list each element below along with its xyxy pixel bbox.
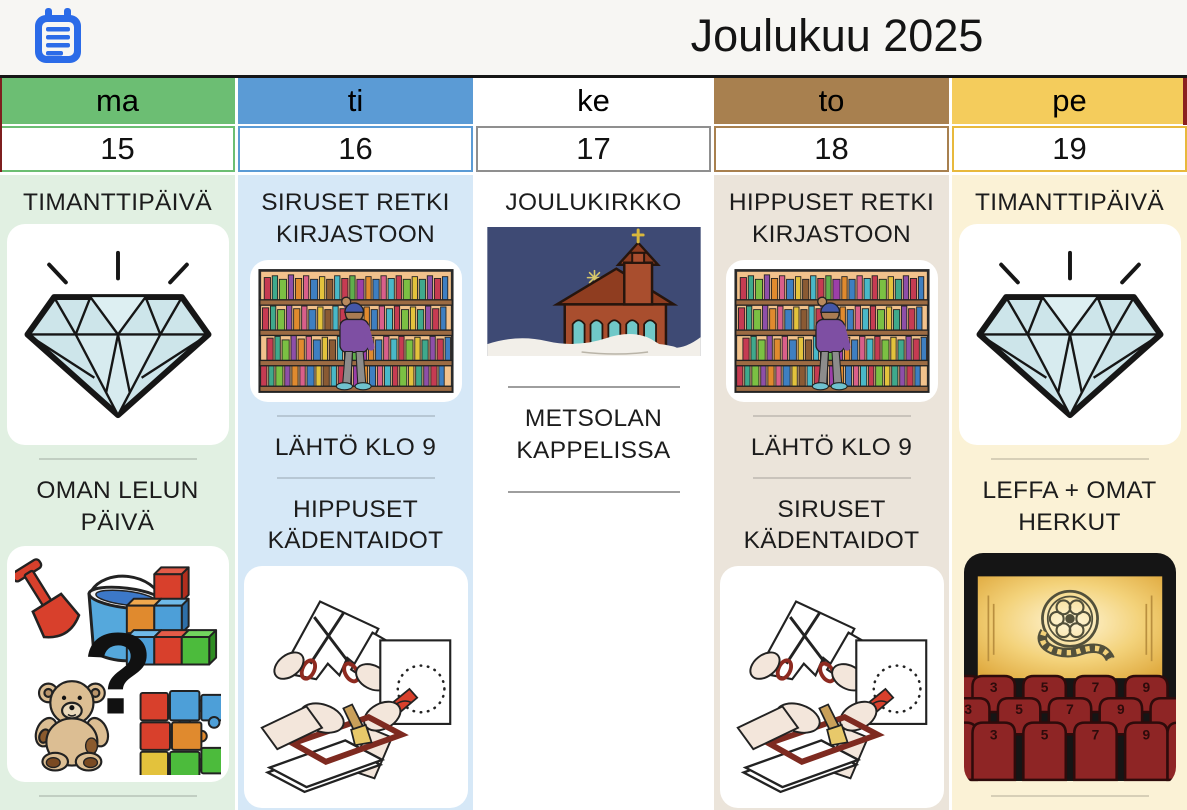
activity-divider xyxy=(753,415,911,417)
next-day-edge xyxy=(1183,78,1187,125)
day-name-header: ma xyxy=(0,78,235,124)
activity-label: TIMANTTIPÄIVÄ xyxy=(23,187,212,219)
activity-label: HIPPUSET KÄDENTAIDOT xyxy=(252,494,460,558)
activity-divider xyxy=(508,386,680,388)
activity-label: JOULUKIRKKO xyxy=(505,187,681,219)
seat-number: 7 xyxy=(1091,727,1099,742)
seat-number: 9 xyxy=(1142,679,1150,694)
seat-number: 5 xyxy=(1040,679,1048,694)
activity-divider xyxy=(277,415,435,417)
activity-divider xyxy=(277,477,435,479)
day-activities: TIMANTTIPÄIVÄ OMAN LELUN PÄIVÄ xyxy=(0,175,235,810)
activity-label: SIRUSET KÄDENTAIDOT xyxy=(728,494,936,558)
library-illustration xyxy=(250,260,462,402)
activity-label: TIMANTTIPÄIVÄ xyxy=(975,187,1164,219)
diamond-illustration xyxy=(959,224,1181,445)
activity-label: METSOLAN KAPPELISSA xyxy=(490,403,698,467)
crafts-illustration xyxy=(244,566,468,808)
seat-number: 9 xyxy=(1117,702,1125,717)
day-column-ma: ma 15 TIMANTTIPÄIVÄ OMAN LELUN PÄIVÄ xyxy=(0,78,235,810)
day-column-pe: pe 19 TIMANTTIPÄIVÄ LEFFA + OMAT HERKUT xyxy=(952,78,1187,810)
clipboard-icon[interactable] xyxy=(33,8,83,66)
day-column-ke: ke 17 JOULUKIRKKO xyxy=(476,78,711,810)
activity-divider xyxy=(508,491,680,493)
day-column-ti: ti 16 SIRUSET RETKI KIRJASTOON LÄHTÖ KLO… xyxy=(238,78,473,810)
activity-label: HIPPUSET RETKI KIRJASTOON xyxy=(728,187,936,251)
seat-number: 9 xyxy=(1142,727,1150,742)
seat-number: 3 xyxy=(964,702,972,717)
day-date-cell: 19 xyxy=(952,126,1187,172)
activity-label: LEFFA + OMAT HERKUT xyxy=(966,475,1174,539)
activity-divider xyxy=(39,458,197,460)
day-activities: HIPPUSET RETKI KIRJASTOON LÄHTÖ KLO 9 SI… xyxy=(714,175,949,810)
day-column-to: to 18 HIPPUSET RETKI KIRJASTOON LÄHTÖ KL… xyxy=(714,78,949,810)
activity-divider xyxy=(991,795,1149,797)
cinema-illustration: 3 5 7 9 3 5 7 xyxy=(964,547,1176,787)
activity-divider xyxy=(753,477,911,479)
seat-number: 7 xyxy=(1091,679,1099,694)
day-activities: JOULUKIRKKO xyxy=(476,175,711,810)
day-name-header: to xyxy=(714,78,949,124)
library-illustration xyxy=(726,260,938,402)
seat-number: 5 xyxy=(1040,727,1048,742)
day-date-cell: 17 xyxy=(476,126,711,172)
seat-number: 7 xyxy=(1066,702,1074,717)
activity-label: LÄHTÖ KLO 9 xyxy=(275,432,436,464)
crafts-illustration xyxy=(720,566,944,808)
top-bar: Joulukuu 2025 xyxy=(0,0,1187,75)
activity-label: LÄHTÖ KLO 9 xyxy=(751,432,912,464)
activity-divider xyxy=(39,795,197,797)
toys-illustration: ? xyxy=(7,546,229,782)
seat-number: 3 xyxy=(989,679,997,694)
day-name-header: pe xyxy=(952,78,1187,124)
church-illustration xyxy=(487,227,701,356)
day-date-cell: 18 xyxy=(714,126,949,172)
previous-day-edge xyxy=(0,78,2,172)
activity-label: OMAN LELUN PÄIVÄ xyxy=(14,475,222,539)
day-name-header: ke xyxy=(476,78,711,124)
seat-number: 5 xyxy=(1015,702,1023,717)
activity-divider xyxy=(991,458,1149,460)
clipboard-icon-glyph xyxy=(33,8,83,66)
week-board: ma 15 TIMANTTIPÄIVÄ OMAN LELUN PÄIVÄ xyxy=(0,75,1187,800)
day-date-cell: 16 xyxy=(238,126,473,172)
page-title: Joulukuu 2025 xyxy=(691,9,984,61)
day-date-cell: 15 xyxy=(0,126,235,172)
day-name-header: ti xyxy=(238,78,473,124)
diamond-illustration xyxy=(7,224,229,445)
day-activities: TIMANTTIPÄIVÄ LEFFA + OMAT HERKUT xyxy=(952,175,1187,810)
seat-number: 3 xyxy=(989,727,997,742)
day-activities: SIRUSET RETKI KIRJASTOON LÄHTÖ KLO 9 HIP… xyxy=(238,175,473,810)
activity-label: SIRUSET RETKI KIRJASTOON xyxy=(252,187,460,251)
